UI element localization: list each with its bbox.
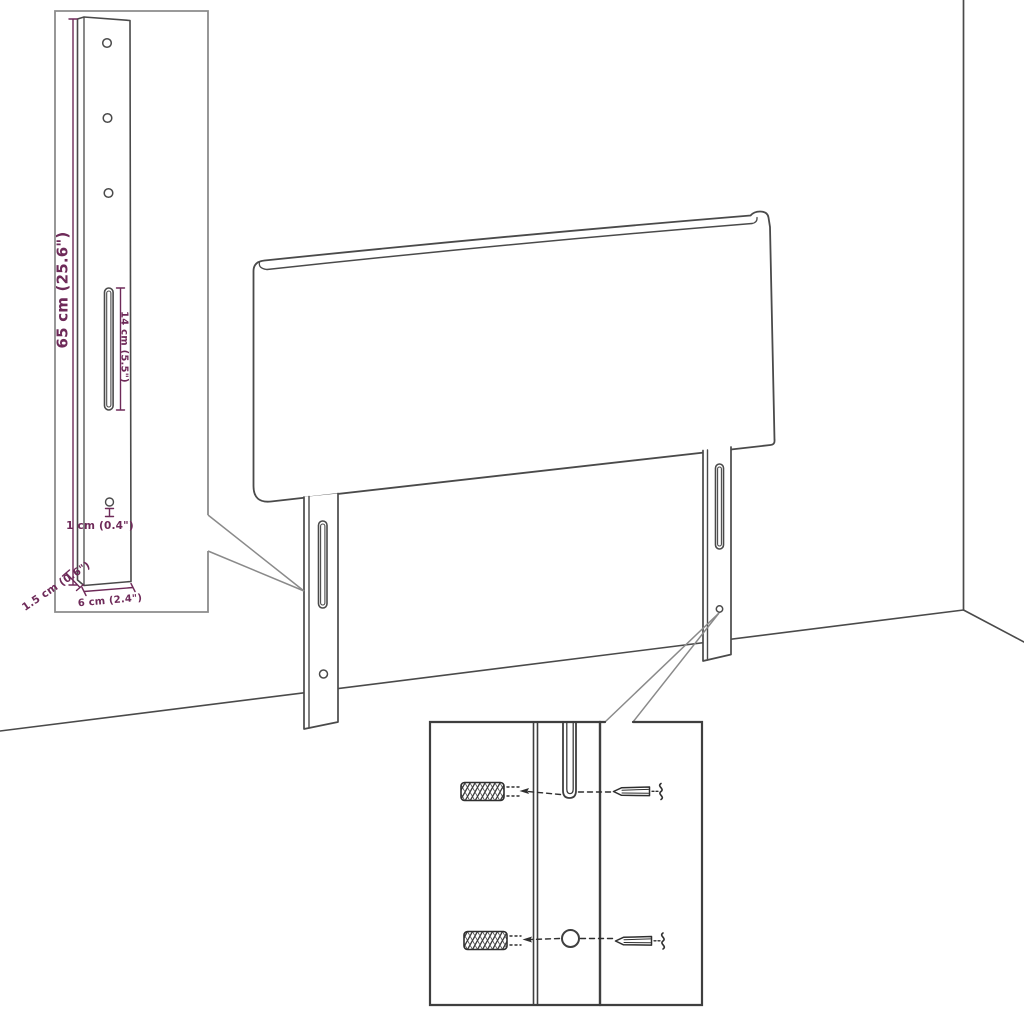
dim-height-label: 65 cm (25.6") — [54, 232, 72, 349]
wall-plug-body — [464, 932, 507, 950]
floor-line-left — [0, 610, 964, 731]
dim-slot-label: 14 cm (5.5") — [119, 311, 130, 383]
wall-plug-body — [461, 783, 504, 801]
hardware-callout-line-left — [605, 613, 719, 722]
dim-hole-label: 1 cm (0.4") — [66, 520, 134, 532]
screw-body — [614, 787, 650, 796]
inset-callout-line-bottom — [208, 551, 304, 591]
headboard-panel — [254, 212, 775, 502]
main-drawing — [0, 0, 1024, 731]
hardware-callout-lines — [605, 613, 719, 722]
inset-callout-lines — [208, 515, 304, 591]
hardware-callout-line-right — [633, 613, 719, 722]
inset-leg-drawing — [78, 17, 132, 586]
hardware-detail-box — [430, 722, 702, 1005]
headboard-assembly-diagram: 65 cm (25.6") 14 cm (5.5") 1 cm (0.4") 6… — [0, 0, 1024, 1024]
screw-body — [616, 937, 652, 946]
dim-width-label: 6 cm (2.4") — [77, 593, 142, 610]
hardware-detail-box-bg — [430, 722, 702, 1005]
inset-callout-line-top — [208, 515, 304, 591]
floor-line-right — [964, 610, 1024, 642]
